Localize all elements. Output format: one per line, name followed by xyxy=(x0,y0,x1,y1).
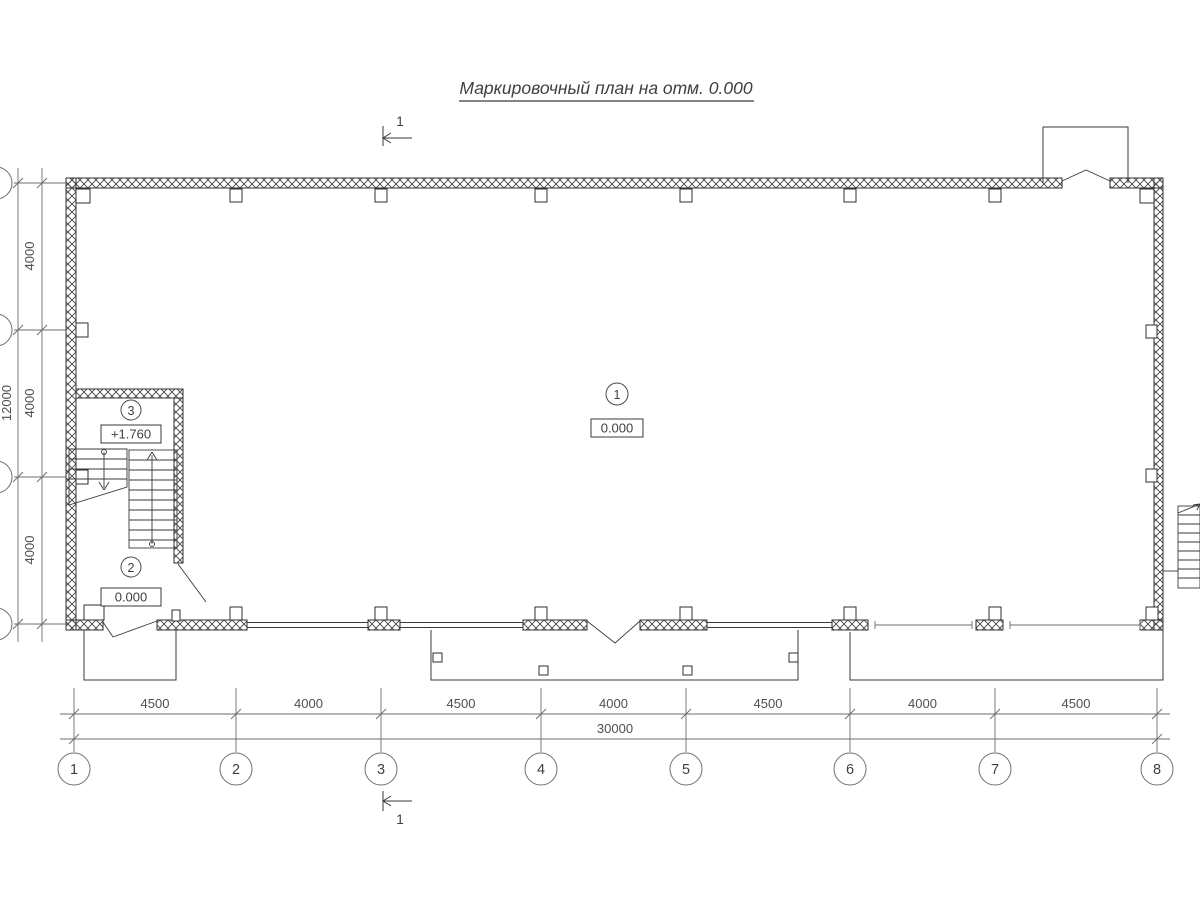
dim-3-4: 4500 xyxy=(447,696,476,711)
door-swing-stair-room xyxy=(178,564,206,602)
porch-middle xyxy=(431,630,798,680)
row-axis-d-circle xyxy=(0,608,12,640)
stair-arrow-down xyxy=(99,452,109,490)
porches xyxy=(84,630,1163,680)
section-mark-bottom: 1 xyxy=(383,791,412,827)
grid-axis-3-label: 3 xyxy=(377,762,385,778)
door-swing-top-entrance xyxy=(1062,170,1110,181)
dim-5-6: 4500 xyxy=(754,696,783,711)
dim-1-2: 4500 xyxy=(141,696,170,711)
section-mark-top: 1 xyxy=(383,114,412,146)
dim-row-b-c: 4000 xyxy=(22,389,37,418)
dim-6-7: 4000 xyxy=(908,696,937,711)
grid-axis-2-label: 2 xyxy=(232,762,240,778)
room-3-level: +1.760 xyxy=(111,427,151,442)
grid-axis-8-label: 8 xyxy=(1153,762,1161,778)
grid-axis-1-label: 1 xyxy=(70,762,78,778)
row-grid: 4000 4000 4000 12000 xyxy=(0,167,66,642)
vestibule-top-right xyxy=(1043,127,1128,183)
grid-axis-4-label: 4 xyxy=(537,762,545,778)
dim-total-height: 12000 xyxy=(0,385,14,421)
grid-axis-7-label: 7 xyxy=(991,762,999,778)
row-axis-a-circle xyxy=(0,167,12,199)
door-swings xyxy=(103,170,1110,643)
floor-plan-drawing: Маркировочный план на отм. 0.000 1 1 xyxy=(0,0,1200,900)
room-3-number: 3 xyxy=(128,404,135,418)
grid-axis-5-label: 5 xyxy=(682,762,690,778)
room-2-number: 2 xyxy=(128,561,135,575)
room-1-number: 1 xyxy=(614,388,621,402)
drawing-title: Маркировочный план на отм. 0.000 xyxy=(459,78,752,98)
porch-left xyxy=(84,630,176,680)
porch-right xyxy=(850,630,1163,680)
dim-2-3: 4000 xyxy=(294,696,323,711)
grid-axis-6-label: 6 xyxy=(846,762,854,778)
dim-total-width: 30000 xyxy=(597,721,633,736)
dim-row-c-d: 4000 xyxy=(22,536,37,565)
bottom-wall-piers xyxy=(66,620,1163,630)
section-mark-bottom-label: 1 xyxy=(396,812,404,827)
door-swing-middle-entrance xyxy=(587,621,640,643)
section-mark-top-label: 1 xyxy=(396,114,404,129)
column-grid: 4500 4000 4500 4000 4500 4000 4500 30000… xyxy=(58,688,1173,785)
row-axis-c-circle xyxy=(0,461,12,493)
room-2-level: 0.000 xyxy=(115,590,148,605)
floor-plan-canvas: Маркировочный план на отм. 0.000 1 1 xyxy=(0,0,1200,900)
room-1-level: 0.000 xyxy=(601,421,634,436)
external-ladder xyxy=(1163,504,1200,588)
dim-row-a-b: 4000 xyxy=(22,242,37,271)
dim-7-8: 4500 xyxy=(1062,696,1091,711)
door-swing-left-entrance xyxy=(103,621,157,637)
row-axis-b-circle xyxy=(0,314,12,346)
dim-4-5: 4000 xyxy=(599,696,628,711)
stair-flight-upper xyxy=(129,450,177,548)
